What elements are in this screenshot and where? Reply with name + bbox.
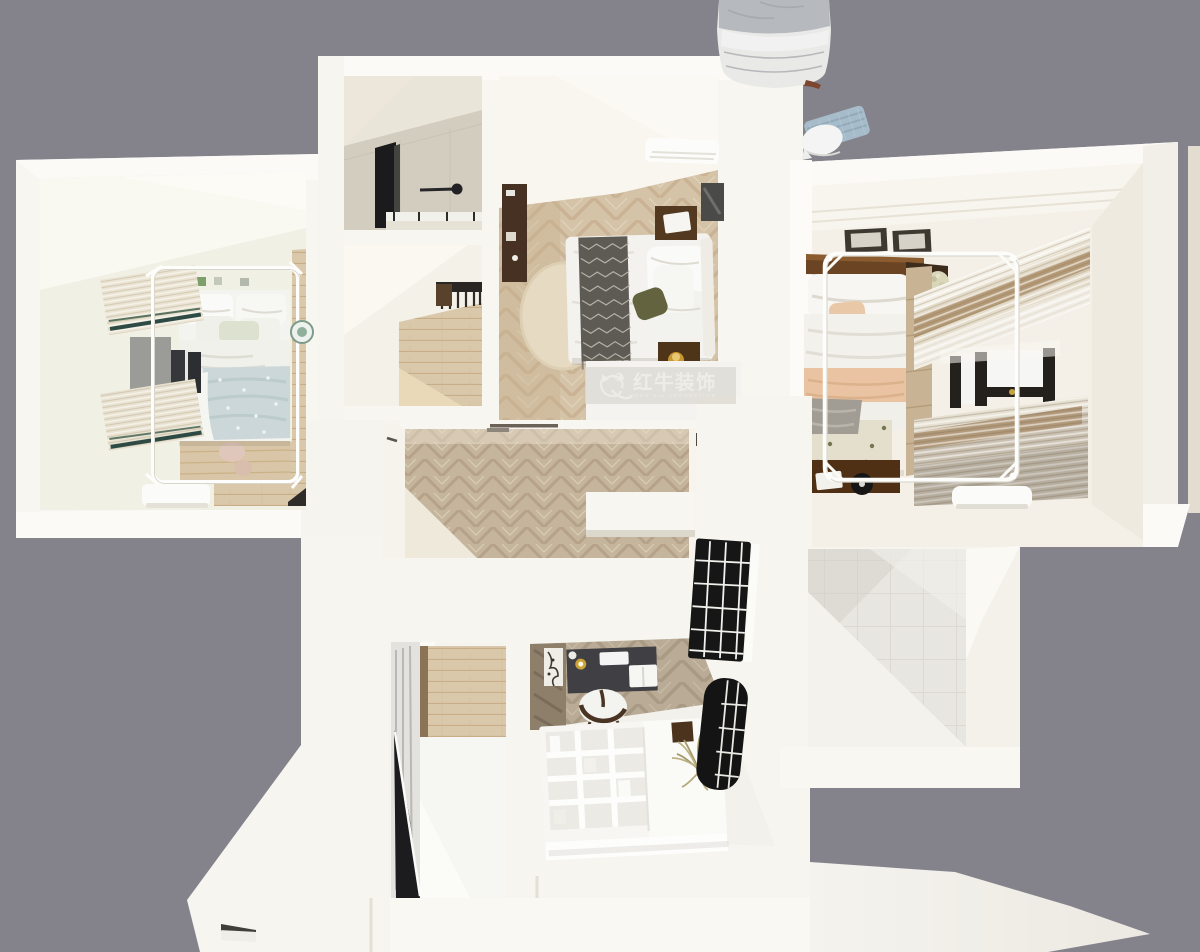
svg-text:HONG NIU DECORATION: HONG NIU DECORATION <box>629 393 716 399</box>
svg-text:红牛装饰: 红牛装饰 <box>633 371 717 394</box>
